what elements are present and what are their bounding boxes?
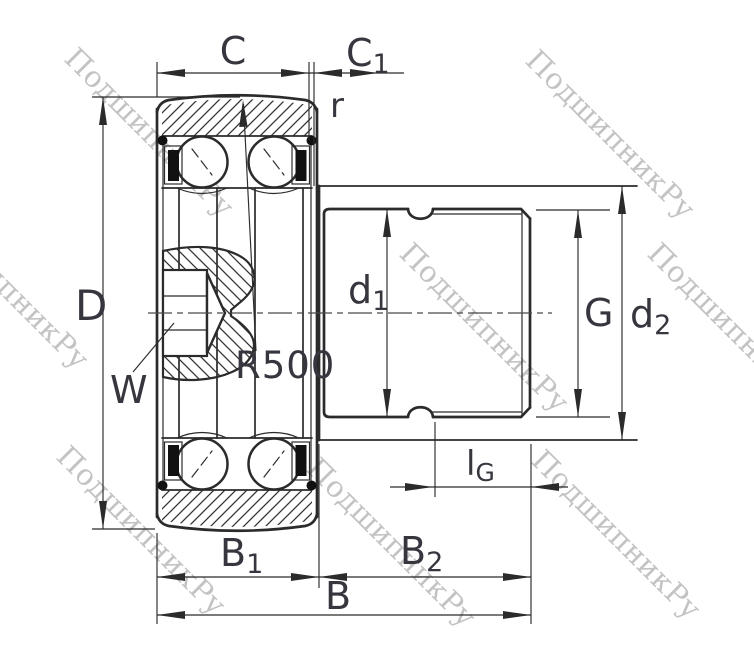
dim-label-d1: d1 xyxy=(348,268,389,317)
dim-label-B1: B1 xyxy=(220,531,263,580)
dim-label-C1: C1 xyxy=(346,31,390,80)
dim-C1: C1 xyxy=(309,31,404,186)
dim-label-B: B xyxy=(325,574,351,618)
outer-ring-top-section xyxy=(162,99,312,136)
dim-d2: d2 xyxy=(618,186,671,440)
dim-label-C: C xyxy=(220,29,247,73)
dim-label-d2: d2 xyxy=(630,292,671,341)
watermarks: ПодшипникРуПодшипникРуПодшипникРуПодшипн… xyxy=(0,41,754,634)
seal xyxy=(296,445,307,476)
outer-ring-bottom-section xyxy=(162,490,312,527)
seal-lip xyxy=(307,481,317,491)
seal-lip xyxy=(158,136,168,146)
seal xyxy=(168,445,179,476)
technical-drawing-page: ПодшипникРуПодшипникРуПодшипникРуПодшипн… xyxy=(0,0,754,652)
dim-label-G: G xyxy=(584,291,613,335)
seal xyxy=(296,150,307,181)
seal xyxy=(168,150,179,181)
watermark-text: ПодшипникРу xyxy=(525,443,708,626)
track-roller-bearing-drawing: ПодшипникРуПодшипникРуПодшипникРуПодшипн… xyxy=(0,0,754,652)
seal-lip xyxy=(307,136,317,146)
watermark-text: ПодшипникРу xyxy=(519,43,702,226)
dim-label-R500: R500 xyxy=(235,344,335,387)
watermark-text: ПодшипникРу xyxy=(393,236,576,419)
dim-label-D: D xyxy=(75,281,107,330)
dim-label-r: r xyxy=(330,86,344,126)
dim-label-W: W xyxy=(110,368,148,412)
dim-label-lG: lG xyxy=(466,444,495,487)
seal-lip xyxy=(158,481,168,491)
dim-label-B2: B2 xyxy=(400,529,443,578)
